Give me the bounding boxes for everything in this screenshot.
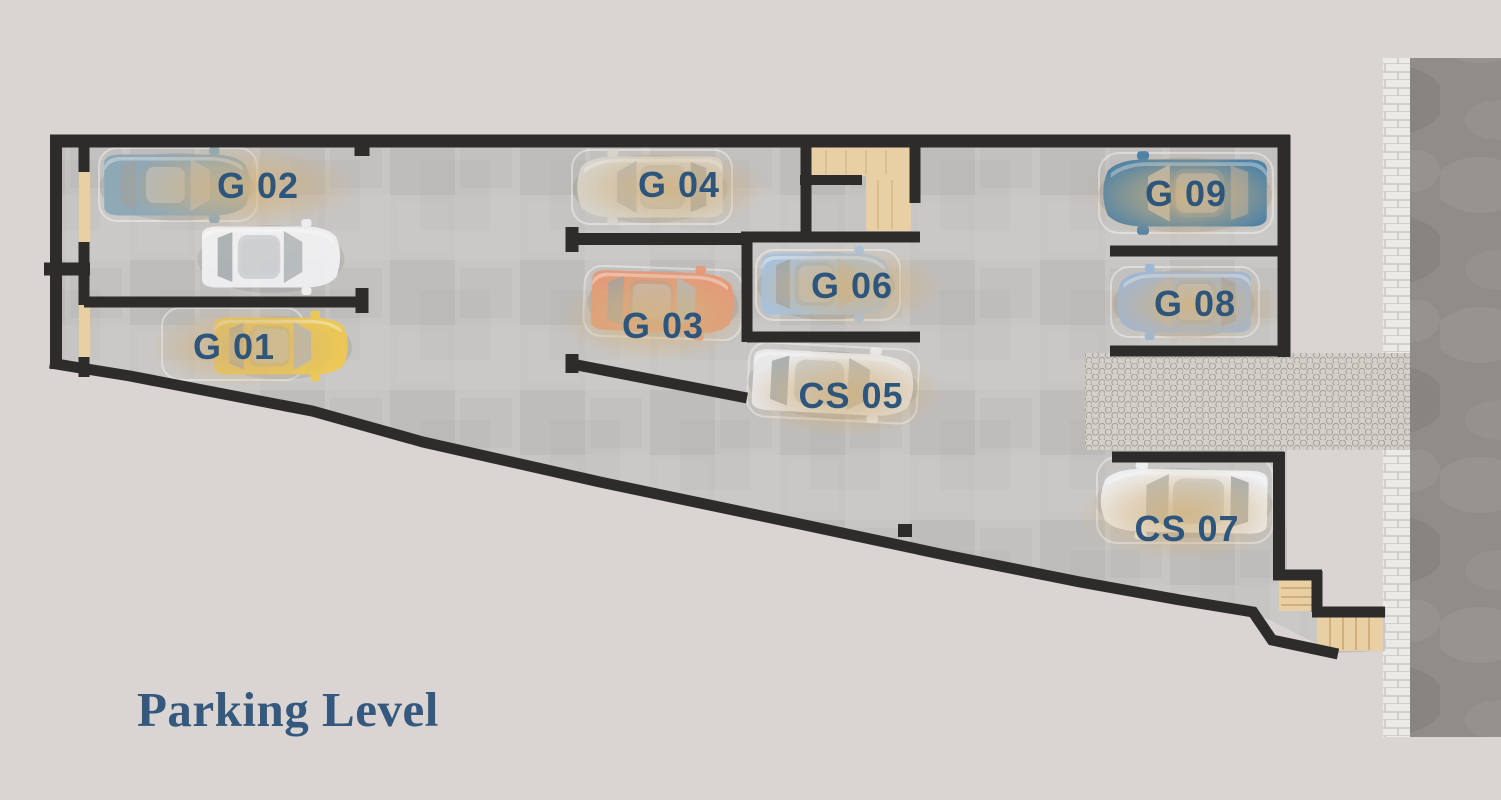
floor-plan-canvas: G 02 G 04 G 09 G 06 G 08 G 03 G 01 CS 05…	[0, 0, 1501, 800]
driveway-cobbles	[1085, 353, 1410, 450]
spot-label-cs07: CS 07	[1134, 508, 1239, 549]
spot-label-g04: G 04	[638, 164, 720, 205]
page-title: Parking Level	[137, 682, 439, 737]
driveway	[1085, 353, 1410, 450]
corridor-door-upper	[79, 172, 90, 242]
spot-label-g08: G 08	[1154, 283, 1236, 324]
wall-fills	[898, 524, 912, 537]
exit-stair-landing	[1279, 577, 1317, 611]
corridor-door-lower	[79, 305, 90, 358]
spot-label-cs05: CS 05	[798, 375, 903, 416]
stair-room-flight	[866, 176, 911, 231]
spot-label-g03: G 03	[622, 305, 704, 346]
spot-label-g06: G 06	[811, 265, 893, 306]
spot-label-g01: G 01	[193, 326, 275, 367]
road-texture	[1410, 58, 1501, 737]
wall-stub-diagonal	[898, 524, 912, 537]
spot-label-g09: G 09	[1145, 173, 1227, 214]
car-unassigned	[197, 219, 344, 295]
spot-label-g02: G 02	[217, 165, 299, 206]
exit-stair-flight	[1317, 612, 1383, 651]
parking-level-plan: G 02 G 04 G 09 G 06 G 08 G 03 G 01 CS 05…	[0, 0, 1501, 800]
